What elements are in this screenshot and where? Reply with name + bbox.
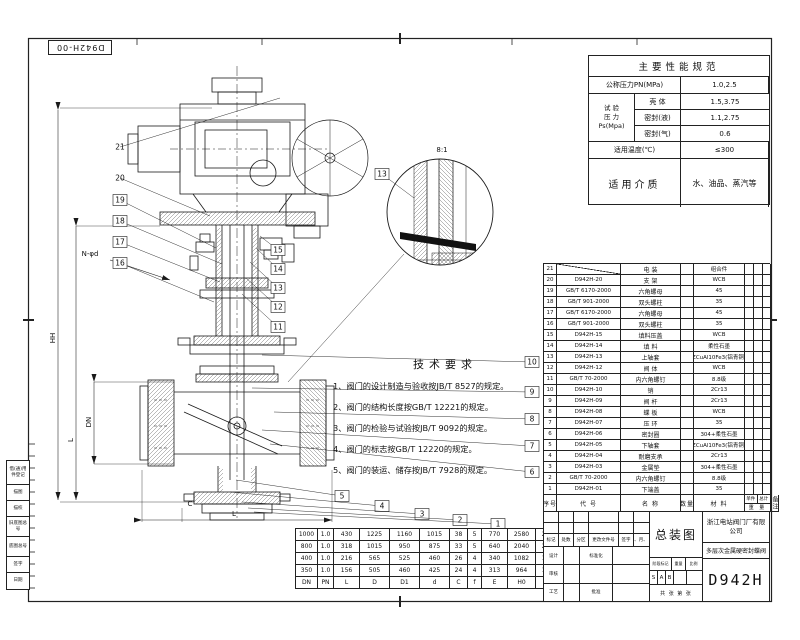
dimension-value: 4 <box>468 565 482 577</box>
part-qty <box>681 440 694 451</box>
dimension-value: 875 <box>420 541 450 553</box>
rev-doc: 更改文件号 <box>589 534 619 546</box>
part-material: WCB <box>694 275 745 286</box>
part-material: ZCuAl10Fe3(铝青铜) <box>694 352 745 363</box>
dimension-value: 400 <box>296 553 318 565</box>
performance-table: 主要性能规范 公称压力PN(MPa) 1.0,2.5 试 验 压 力 Ps(Mp… <box>588 55 770 205</box>
part-code: D942H-10 <box>557 385 621 396</box>
part-weight-total <box>754 374 763 385</box>
part-name: 支 架 <box>621 275 681 286</box>
tech-requirement-item: 1、阀门的设计制造与验收按JB/T 8527的规定。 <box>333 376 557 397</box>
part-remark <box>763 440 771 451</box>
header-name: 名 称 <box>621 495 681 512</box>
part-qty <box>681 319 694 330</box>
part-material: WCB <box>694 363 745 374</box>
part-code: GB/T 70-2000 <box>557 374 621 385</box>
sheet-count: 共 张 第 张 <box>650 585 702 601</box>
tech-requirement-item: 4、阀门的标志按GB/T 12220的规定。 <box>333 439 557 460</box>
parts-row: 7D942H-07压 环35 <box>544 418 770 429</box>
part-qty <box>681 341 694 352</box>
part-material: 组合件 <box>694 264 745 275</box>
neck-column <box>216 225 258 480</box>
part-weight-unit <box>745 319 754 330</box>
title-block: 标记 处数 分区 更改文件号 签字 年、月、日 设计 标准化 审核 工艺 <box>543 511 770 602</box>
stage-scale-label: 比例 <box>686 558 701 570</box>
part-qty <box>681 484 694 495</box>
test-seal-gas-value: 0.6 <box>681 126 769 141</box>
parts-row: 4D942H-04耐磨支承2Cr13 <box>544 451 770 462</box>
dimension-label: N-φd <box>82 250 99 258</box>
part-weight-unit <box>745 352 754 363</box>
part-no: 13 <box>544 352 557 363</box>
part-weight-total <box>754 352 763 363</box>
part-no: 6 <box>544 429 557 440</box>
header-remark: 备注 <box>771 495 779 512</box>
part-qty <box>681 264 694 275</box>
part-no: 9 <box>544 396 557 407</box>
dimension-value: 1000 <box>296 529 318 541</box>
part-name: 耐磨支承 <box>621 451 681 462</box>
tech-requirement-item: 2、阀门的结构长度按GB/T 12221的规定。 <box>333 397 557 418</box>
technical-requirements: 技术要求 1、阀门的设计制造与验收按JB/T 8527的规定。2、阀门的结构长度… <box>333 356 557 481</box>
part-no: 4 <box>544 451 557 462</box>
dimension-value: 565 <box>360 553 390 565</box>
part-qty <box>681 297 694 308</box>
part-name: 内六角螺钉 <box>621 374 681 385</box>
part-weight-total <box>754 330 763 341</box>
yoke-bracket <box>160 194 315 225</box>
part-no: 17 <box>544 308 557 319</box>
part-weight-total <box>754 407 763 418</box>
part-code: D942H-07 <box>557 418 621 429</box>
part-weight-total <box>754 275 763 286</box>
dimension-value: 5 <box>468 541 482 553</box>
part-remark <box>763 473 771 484</box>
part-name: 内六角螺钉 <box>621 473 681 484</box>
parts-row: 2GB/T 70-2000内六角螺钉8.8级 <box>544 473 770 484</box>
dimension-value: 1.0 <box>318 553 334 565</box>
dimension-row: 10001.0430122511601015385770258028-36 <box>296 529 565 541</box>
header-weight-total: 总计 <box>758 495 771 503</box>
dimension-value: 1.0 <box>318 565 334 577</box>
dimension-value: 2040 <box>508 541 536 553</box>
stage-weight-label: 重量 <box>672 558 686 570</box>
part-code: GB/T 70-2000 <box>557 473 621 484</box>
dimension-value: 964 <box>508 565 536 577</box>
test-pressure-label: 试 验 压 力 Ps(Mpa) <box>589 94 635 142</box>
part-weight-total <box>754 484 763 495</box>
part-weight-total <box>754 451 763 462</box>
part-code: D942H-06 <box>557 429 621 440</box>
title-block-middle: 总装图 阶段标记 重量 比例 S A B 共 张 第 张 <box>650 512 703 601</box>
part-material: 45 <box>694 286 745 297</box>
dimension-value: 216 <box>334 553 360 565</box>
parts-row: 14D942H-14填 料柔性石墨 <box>544 341 770 352</box>
test-shell-value: 1.5,3.75 <box>681 94 769 110</box>
part-no: 15 <box>544 330 557 341</box>
part-no: 10 <box>544 385 557 396</box>
balloon-number: 13 <box>273 284 283 293</box>
part-code: D942H-04 <box>557 451 621 462</box>
medium-value: 水、油品、蒸汽等 <box>681 159 769 207</box>
dimension-column-label: C <box>450 577 468 589</box>
dimension-column-label: E <box>482 577 508 589</box>
parts-list-rows: 21电 装组合件20D942H-20支 架WCB19GB/T 6170-2000… <box>544 264 770 495</box>
part-remark <box>763 341 771 352</box>
dimension-value: 460 <box>420 553 450 565</box>
part-code: GB/T 901-2000 <box>557 297 621 308</box>
dimension-column-label: D <box>360 577 390 589</box>
part-code: D942H-05 <box>557 440 621 451</box>
part-weight-unit <box>745 330 754 341</box>
part-weight-total <box>754 385 763 396</box>
balloon-number: 16 <box>115 259 125 268</box>
dimension-value: 505 <box>360 565 390 577</box>
dimension-column-label: DN <box>296 577 318 589</box>
dimension-value: 950 <box>390 541 420 553</box>
margin-field: 借(通)用件登记 <box>7 461 29 485</box>
temperature-value: ≤300 <box>681 142 769 159</box>
parts-row: 5D942H-05下轴套ZCuAl10Fe3(铝青铜) <box>544 440 770 451</box>
part-no: 19 <box>544 286 557 297</box>
parts-row: 8D942H-08蝶 板WCB <box>544 407 770 418</box>
part-material: ZCuAl10Fe3(铝青铜) <box>694 440 745 451</box>
part-remark <box>763 451 771 462</box>
part-material: 35 <box>694 297 745 308</box>
test-seal-gas-label: 密封(气) <box>635 126 680 141</box>
test-seal-liquid-label: 密封(液) <box>635 110 680 126</box>
balloon-number: 2 <box>458 516 463 525</box>
part-name: 压 环 <box>621 418 681 429</box>
part-code: D942H-20 <box>557 275 621 286</box>
parts-row: 3D942H-03金属垫304+柔性石墨 <box>544 462 770 473</box>
handwheel <box>292 120 368 196</box>
part-material: 8.8级 <box>694 374 745 385</box>
sign-design: 设计 <box>544 547 564 564</box>
part-weight-unit <box>745 396 754 407</box>
part-qty <box>681 330 694 341</box>
dimension-value: 770 <box>482 529 508 541</box>
dimension-value: 1.0 <box>318 529 334 541</box>
parts-list-table: 21电 装组合件20D942H-20支 架WCB19GB/T 6170-2000… <box>543 263 770 512</box>
part-weight-unit <box>745 363 754 374</box>
dimension-value: 33 <box>450 541 468 553</box>
actuator-window <box>250 160 276 186</box>
part-remark <box>763 396 771 407</box>
sign-check: 审核 <box>544 565 564 582</box>
part-code: GB/T 6170-2000 <box>557 286 621 297</box>
dimension-value: 24 <box>450 565 468 577</box>
parts-row: 19GB/T 6170-2000六角螺母45 <box>544 286 770 297</box>
header-weight-group: 单件 总计 重 量 <box>745 495 771 512</box>
part-name: 阀 杆 <box>621 396 681 407</box>
dimension-value: 1015 <box>420 529 450 541</box>
part-material: 304+柔性石墨 <box>694 429 745 440</box>
dimension-column-label: f <box>468 577 482 589</box>
assembly-drawing-title: 总装图 <box>650 512 702 558</box>
dimension-value: 26 <box>450 553 468 565</box>
part-weight-unit <box>745 462 754 473</box>
parts-row: 1D942H-01下端盖35 <box>544 484 770 495</box>
dimension-label: 8:1 <box>436 146 447 154</box>
dimension-row: 4001.0216565525460264340108216-26 <box>296 553 565 565</box>
margin-field: 底图总号 <box>7 537 29 557</box>
dimension-row: 3501.015650546042524431396416-22 <box>296 565 565 577</box>
dimension-label: L <box>67 438 75 442</box>
part-weight-unit <box>745 374 754 385</box>
part-remark <box>763 418 771 429</box>
part-no: 8 <box>544 407 557 418</box>
dimension-label: L <box>232 510 236 518</box>
rev-zone: 分区 <box>574 534 589 546</box>
margin-field: 日期 <box>7 573 29 589</box>
part-material: 35 <box>694 418 745 429</box>
dimension-table: 10001.0430122511601015385770258028-36800… <box>295 528 565 589</box>
part-weight-total <box>754 264 763 275</box>
part-remark <box>763 462 771 473</box>
part-remark <box>763 319 771 330</box>
balloon-number: 17 <box>115 238 125 247</box>
part-weight-unit <box>745 385 754 396</box>
header-no: 序号 <box>544 495 557 512</box>
part-no: 11 <box>544 374 557 385</box>
header-code: 代 号 <box>557 495 621 512</box>
parts-row: 20D942H-20支 架WCB <box>544 275 770 286</box>
part-remark <box>763 275 771 286</box>
part-no: 2 <box>544 473 557 484</box>
part-name: 密封圈 <box>621 429 681 440</box>
part-weight-unit <box>745 429 754 440</box>
dimension-value: 4 <box>468 553 482 565</box>
part-remark <box>763 264 771 275</box>
part-name: 上轴套 <box>621 352 681 363</box>
header-weight-unit: 单件 <box>745 495 758 503</box>
balloon-number: 14 <box>273 265 283 274</box>
part-no: 1 <box>544 484 557 495</box>
part-no: 12 <box>544 363 557 374</box>
parts-row: 10D942H-10销2Cr13 <box>544 385 770 396</box>
dimension-column-label: H0 <box>508 577 536 589</box>
part-no: 18 <box>544 297 557 308</box>
margin-field: 描校 <box>7 501 29 517</box>
valve-model-number: D942H <box>703 559 769 601</box>
part-weight-unit <box>745 264 754 275</box>
part-name: 金属垫 <box>621 462 681 473</box>
part-weight-unit <box>745 484 754 495</box>
part-weight-total <box>754 440 763 451</box>
part-weight-unit <box>745 286 754 297</box>
margin-field: 旧底图总号 <box>7 517 29 537</box>
sign-standard: 标准化 <box>580 547 613 564</box>
part-qty <box>681 396 694 407</box>
parts-row: 6D942H-06密封圈304+柔性石墨 <box>544 429 770 440</box>
margin-field: 描图 <box>7 485 29 501</box>
part-remark <box>763 352 771 363</box>
parts-row: 11GB/T 70-2000内六角螺钉8.8级 <box>544 374 770 385</box>
dimension-value: 800 <box>296 541 318 553</box>
part-material: WCB <box>694 330 745 341</box>
test-seal-liquid-value: 1.1,2.75 <box>681 110 769 126</box>
part-code: D942H-15 <box>557 330 621 341</box>
part-no: 3 <box>544 462 557 473</box>
butterfly-disc <box>184 404 282 454</box>
dimension-value: 156 <box>334 565 360 577</box>
part-code: D942H-01 <box>557 484 621 495</box>
part-weight-unit <box>745 308 754 319</box>
part-material: 35 <box>694 484 745 495</box>
part-no: 20 <box>544 275 557 286</box>
parts-row: 16GB/T 901-2000双头螺柱35 <box>544 319 770 330</box>
part-remark <box>763 330 771 341</box>
dimension-row: 8001.03181015950875335640204024-33 <box>296 541 565 553</box>
test-shell-label: 壳 体 <box>635 94 680 110</box>
part-weight-total <box>754 297 763 308</box>
stage-mark-label: 阶段标记 <box>650 558 672 570</box>
part-material: 8.8级 <box>694 473 745 484</box>
part-code: GB/T 901-2000 <box>557 319 621 330</box>
part-qty <box>681 374 694 385</box>
balloon-number: 11 <box>273 323 283 332</box>
part-material: 304+柔性石墨 <box>694 462 745 473</box>
part-qty <box>681 352 694 363</box>
part-code: D942H-14 <box>557 341 621 352</box>
part-weight-unit <box>745 473 754 484</box>
balloon-number: 21 <box>115 143 125 152</box>
tech-requirement-item: 3、阀门的检验与试验按JB/T 9092的规定。 <box>333 418 557 439</box>
dimension-value: 430 <box>334 529 360 541</box>
dimension-value: 425 <box>420 565 450 577</box>
part-name: 销 <box>621 385 681 396</box>
part-material: 45 <box>694 308 745 319</box>
part-qty <box>681 286 694 297</box>
parts-row: 13D942H-13上轴套ZCuAl10Fe3(铝青铜) <box>544 352 770 363</box>
dimension-value: 460 <box>390 565 420 577</box>
part-code: D942H-09 <box>557 396 621 407</box>
part-weight-total <box>754 473 763 484</box>
company-name: 浙江电站阀门厂有限公司 <box>703 512 769 543</box>
dimension-column-label: d <box>420 577 450 589</box>
margin-field: 签字 <box>7 557 29 573</box>
title-block-right: 浙江电站阀门厂有限公司 多层次金属硬密封蝶阀 D942H <box>703 512 769 601</box>
part-remark <box>763 297 771 308</box>
parts-row: 9D942H-09阀 杆2Cr13 <box>544 396 770 407</box>
part-code <box>557 264 621 275</box>
part-code: GB/T 6170-2000 <box>557 308 621 319</box>
balloon-number: 15 <box>273 246 283 255</box>
parts-row: 18GB/T 901-2000双头螺柱35 <box>544 297 770 308</box>
dimension-label: HH <box>49 333 57 344</box>
part-weight-unit <box>745 407 754 418</box>
nominal-pressure-value: 1.0,2.5 <box>681 77 769 94</box>
medium-label: 适用介质 <box>589 159 681 207</box>
part-weight-total <box>754 319 763 330</box>
part-weight-total <box>754 462 763 473</box>
part-material: 2Cr13 <box>694 451 745 462</box>
rev-sign: 签字 <box>619 534 634 546</box>
part-weight-unit <box>745 275 754 286</box>
dimension-value: 1160 <box>390 529 420 541</box>
part-no: 14 <box>544 341 557 352</box>
part-qty <box>681 308 694 319</box>
part-name: 填 料 <box>621 341 681 352</box>
part-weight-unit <box>745 297 754 308</box>
nominal-pressure-label: 公称压力PN(MPa) <box>589 77 681 94</box>
balloon-number: 13 <box>377 170 387 179</box>
dimension-column-label: L <box>334 577 360 589</box>
part-code: D942H-12 <box>557 363 621 374</box>
part-remark <box>763 484 771 495</box>
dimension-value: 38 <box>450 529 468 541</box>
parts-row: 17GB/T 6170-2000六角螺母45 <box>544 308 770 319</box>
dimension-value: 1015 <box>360 541 390 553</box>
drawing-sheet: D942H-00 <box>0 0 800 640</box>
part-name: 蝶 板 <box>621 407 681 418</box>
part-qty <box>681 385 694 396</box>
part-material: 2Cr13 <box>694 396 745 407</box>
part-material: WCB <box>694 407 745 418</box>
part-weight-unit <box>745 451 754 462</box>
product-name: 多层次金属硬密封蝶阀 <box>703 543 769 559</box>
balloon-number: 3 <box>420 510 425 519</box>
part-name: 下轴套 <box>621 440 681 451</box>
part-remark <box>763 374 771 385</box>
corner-stamp-text: D942H-00 <box>56 43 105 52</box>
part-remark <box>763 429 771 440</box>
dimension-label: DN <box>85 417 93 428</box>
part-code: D942H-13 <box>557 352 621 363</box>
part-no: 21 <box>544 264 557 275</box>
sign-process: 工艺 <box>544 584 564 601</box>
part-remark <box>763 407 771 418</box>
part-name: 六角螺母 <box>621 286 681 297</box>
part-qty <box>681 363 694 374</box>
balloon-number: 18 <box>115 217 125 226</box>
rev-count: 处数 <box>559 534 574 546</box>
dimension-value: 340 <box>482 553 508 565</box>
seal-ring-section <box>400 232 476 251</box>
stage-mark-s: S <box>650 571 658 584</box>
balloon-number: 4 <box>380 502 385 511</box>
performance-title: 主要性能规范 <box>589 56 769 77</box>
part-qty <box>681 451 694 462</box>
part-qty <box>681 429 694 440</box>
part-weight-total <box>754 396 763 407</box>
part-no: 16 <box>544 319 557 330</box>
balloon-number: 19 <box>115 196 125 205</box>
dimension-column-label: D1 <box>390 577 420 589</box>
dimension-value: 1225 <box>360 529 390 541</box>
stage-mark-a: A <box>658 571 666 584</box>
header-weight: 重 量 <box>745 504 770 512</box>
balloon-number: 5 <box>340 492 345 501</box>
part-name: 双头螺柱 <box>621 319 681 330</box>
part-weight-total <box>754 286 763 297</box>
part-remark <box>763 385 771 396</box>
tech-requirement-item: 5、阀门的装运、储存按JB/T 7928的规定。 <box>333 460 557 481</box>
temperature-label: 适用温度(℃) <box>589 142 681 159</box>
part-name: 电 装 <box>621 264 681 275</box>
parts-list-header: 序号 代 号 名 称 数量 材 料 单件 总计 重 量 备注 <box>544 495 770 512</box>
balloon-number: 20 <box>115 174 125 183</box>
part-no: 5 <box>544 440 557 451</box>
part-qty <box>681 462 694 473</box>
part-qty <box>681 407 694 418</box>
part-weight-total <box>754 418 763 429</box>
part-code: D942H-03 <box>557 462 621 473</box>
part-qty <box>681 418 694 429</box>
part-remark <box>763 363 771 374</box>
part-name: 填料压盖 <box>621 330 681 341</box>
